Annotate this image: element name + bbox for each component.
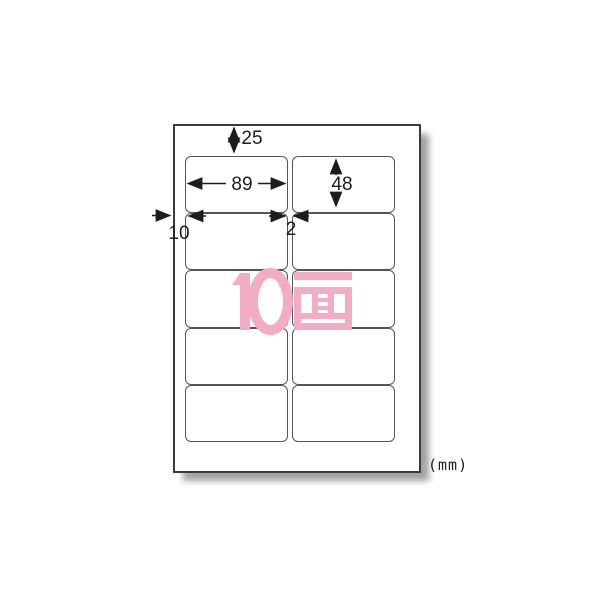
unit-note: (mm) xyxy=(428,456,468,474)
dim-label-width-value: 89 xyxy=(231,175,252,194)
dim-top-margin-value: 25 xyxy=(241,129,262,148)
label-cell xyxy=(185,328,288,385)
label-cell xyxy=(185,270,288,327)
label-cell xyxy=(292,213,395,270)
label-cell xyxy=(292,328,395,385)
dim-col-gap-value: 2 xyxy=(286,220,297,239)
label-cell xyxy=(292,270,395,327)
dim-left-margin-value: 10 xyxy=(168,224,189,243)
label-cell xyxy=(185,213,288,270)
label-cell xyxy=(185,385,288,442)
label-grid xyxy=(185,156,395,442)
dim-label-height-value: 48 xyxy=(331,175,352,194)
product-diagram: 25 89 48 10 2 (mm) xyxy=(0,0,600,600)
label-cell xyxy=(292,385,395,442)
